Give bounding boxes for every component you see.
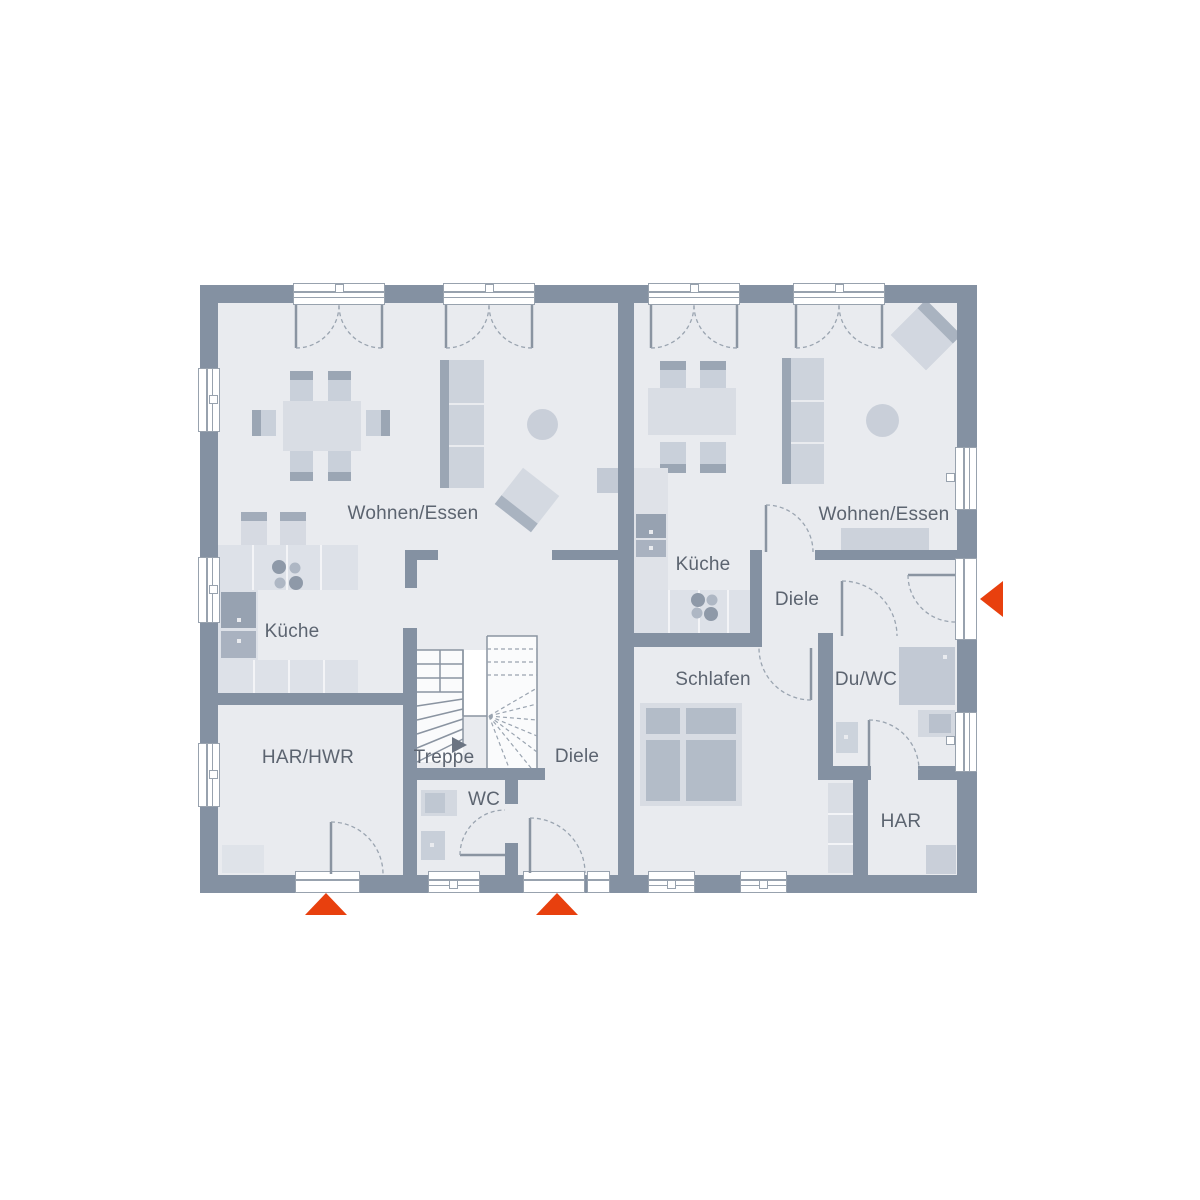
window-symbol (335, 284, 344, 293)
floor-plan: Wohnen/Essen Küche HAR/HWR Treppe WC Die… (0, 0, 1200, 1200)
shelf-divider (791, 442, 824, 444)
window-symbol (835, 284, 844, 293)
room-label-diele-left: Diele (555, 746, 599, 768)
entrance-marker-up (305, 893, 347, 915)
room-label-har: HAR (881, 811, 922, 833)
window (955, 712, 977, 772)
entrance-door-right (955, 558, 977, 640)
lowboard (597, 468, 618, 493)
room-label-schlafen: Schlafen (675, 669, 751, 691)
bed (640, 703, 742, 806)
shelf-divider (791, 400, 824, 402)
wall-segment (833, 766, 871, 780)
room-label-wohnen-essen-right: Wohnen/Essen (819, 504, 950, 526)
shelf-unit (440, 360, 484, 488)
wall-segment (552, 550, 618, 560)
entrance-marker-left (980, 581, 1003, 617)
kitchen-counter (218, 660, 358, 693)
window-symbol (946, 473, 955, 482)
wall-segment (405, 550, 417, 588)
wall-segment (403, 768, 545, 780)
chair (290, 449, 313, 481)
dining-table (283, 401, 361, 451)
wc-toilet (421, 831, 445, 860)
kitchen-counter (634, 590, 755, 633)
window (955, 447, 977, 510)
stool (280, 512, 306, 545)
shelf-divider (449, 403, 484, 405)
wall-segment (505, 780, 518, 804)
chair (252, 410, 276, 436)
shelf-unit (782, 358, 824, 484)
oven (221, 592, 256, 628)
shower (899, 647, 955, 705)
bed-pillow (646, 708, 680, 734)
window-symbol (485, 284, 494, 293)
microwave (221, 631, 256, 658)
wardrobe (828, 783, 853, 873)
room-label-wc: WC (468, 789, 500, 811)
kitchen-counter (218, 545, 358, 590)
wc-sink (421, 790, 457, 816)
bed-pillow (686, 708, 736, 734)
sidelight (587, 871, 610, 893)
round-rug (527, 409, 558, 440)
chair (366, 410, 390, 436)
shelf-divider (449, 445, 484, 447)
sofa (841, 528, 929, 552)
window-symbol (209, 585, 218, 594)
wall-segment (853, 780, 868, 875)
window-symbol (209, 770, 218, 779)
room-label-har-hwr: HAR/HWR (262, 747, 354, 769)
room-label-diele-right: Diele (775, 589, 819, 611)
microwave (636, 540, 666, 557)
bath-sink (918, 710, 955, 737)
room-label-wohnen-essen-left: Wohnen/Essen (348, 503, 479, 525)
round-rug (866, 404, 899, 437)
window-symbol (449, 880, 458, 889)
window-symbol (690, 284, 699, 293)
window-symbol (667, 880, 676, 889)
entrance-door-har (295, 871, 360, 893)
chair (700, 442, 726, 473)
wall-segment (750, 550, 762, 647)
wall-segment (505, 843, 518, 875)
floor-mat (222, 845, 264, 873)
room-label-treppe: Treppe (414, 747, 475, 769)
wall-segment (815, 550, 957, 560)
oven (636, 514, 666, 538)
window-symbol (946, 736, 955, 745)
washing-machine (926, 845, 956, 874)
bath-toilet (836, 722, 858, 753)
dining-table (648, 388, 736, 435)
room-label-du-wc: Du/WC (835, 669, 897, 691)
window-symbol (759, 880, 768, 889)
wall-segment (218, 693, 405, 705)
chair (328, 371, 351, 403)
chair (328, 449, 351, 481)
chair (290, 371, 313, 403)
bed-duvet (686, 740, 736, 801)
entrance-marker-up (536, 893, 578, 915)
room-label-kueche-right: Küche (676, 554, 731, 576)
window-symbol (209, 395, 218, 404)
wall-segment (818, 633, 833, 780)
wall-segment (918, 766, 957, 780)
wall-segment (634, 633, 752, 647)
stool (241, 512, 267, 545)
bed-duvet (646, 740, 680, 801)
entrance-door-front (523, 871, 585, 893)
party-wall (618, 303, 634, 875)
room-label-kueche-left: Küche (265, 621, 320, 643)
